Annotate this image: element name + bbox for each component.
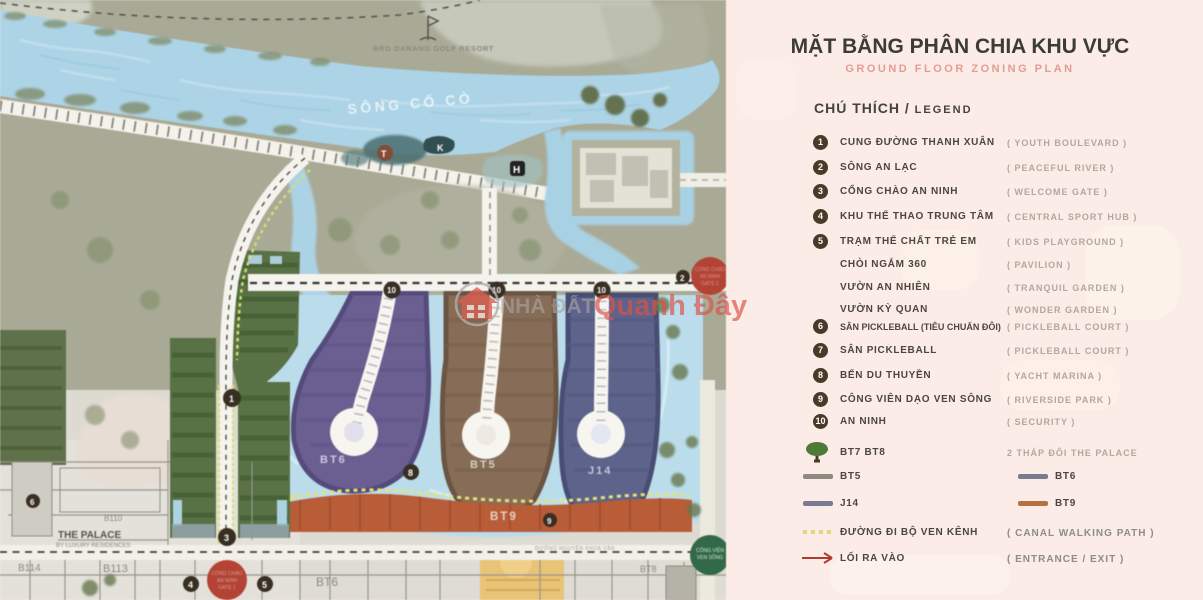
svg-text:THE PALACE: THE PALACE — [58, 530, 121, 541]
svg-text:5: 5 — [262, 580, 267, 590]
svg-text:T: T — [381, 149, 387, 159]
svg-text:9: 9 — [547, 517, 552, 526]
svg-text:K: K — [437, 143, 444, 153]
svg-text:B113: B113 — [103, 563, 128, 575]
svg-text:CÔNG VIÊN: CÔNG VIÊN — [696, 546, 724, 554]
svg-text:3: 3 — [224, 533, 229, 543]
svg-text:6: 6 — [30, 498, 35, 507]
svg-text:J14: J14 — [588, 465, 612, 477]
svg-text:B114: B114 — [18, 563, 41, 574]
svg-text:BT5: BT5 — [470, 459, 497, 471]
svg-text:Quanh Đây: Quanh Đây — [594, 290, 747, 322]
svg-text:CỔNG CHÀO: CỔNG CHÀO — [212, 570, 243, 577]
svg-text:BY LUXURY RESIDENCES: BY LUXURY RESIDENCES — [56, 543, 130, 549]
svg-text:AN NINH: AN NINH — [217, 578, 238, 584]
svg-text:VEN SÔNG: VEN SÔNG — [697, 554, 724, 561]
svg-text:4: 4 — [188, 580, 193, 590]
svg-text:H: H — [513, 165, 520, 176]
svg-text:GATE 1: GATE 1 — [218, 585, 236, 591]
svg-text:BT8: BT8 — [640, 564, 657, 574]
svg-text:1: 1 — [229, 394, 234, 404]
svg-text:10: 10 — [387, 286, 396, 295]
svg-text:B110: B110 — [104, 514, 123, 523]
svg-text:BRG DANANG GOLF RESORT: BRG DANANG GOLF RESORT — [373, 44, 494, 53]
svg-text:ĐƯỜNG NGUYỄN KHOA VĂN: ĐƯỜNG NGUYỄN KHOA VĂN — [535, 545, 615, 552]
svg-text:BT6: BT6 — [320, 454, 347, 466]
svg-text:CỔNG CHÀO: CỔNG CHÀO — [695, 266, 726, 273]
svg-text:NHÀ ĐẤT: NHÀ ĐẤT — [500, 295, 595, 318]
svg-text:BT9: BT9 — [490, 511, 518, 523]
svg-text:8: 8 — [408, 468, 413, 478]
svg-text:BT6: BT6 — [316, 575, 338, 589]
